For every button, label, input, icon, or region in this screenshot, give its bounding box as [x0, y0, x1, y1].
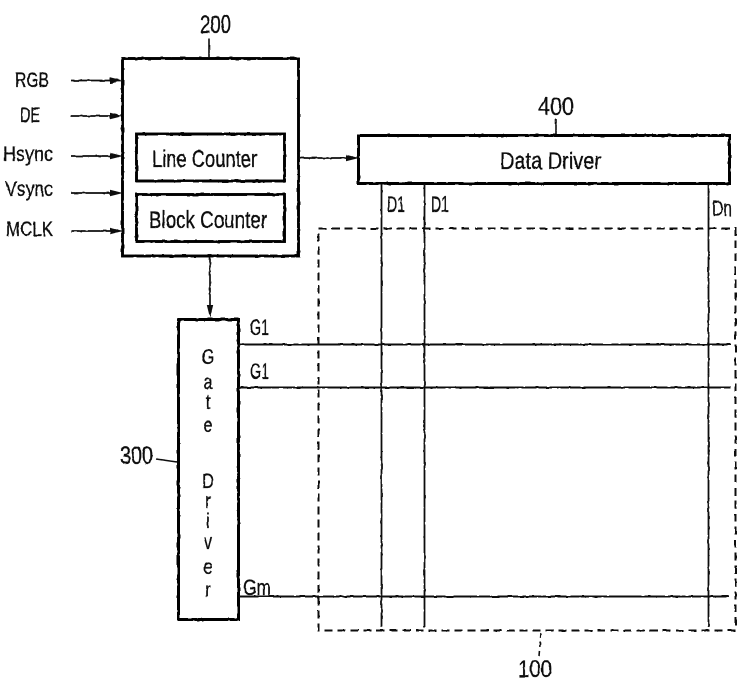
svg-text:D1: D1 [431, 192, 449, 217]
svg-text:G1: G1 [250, 315, 269, 340]
svg-text:DE: DE [20, 104, 40, 127]
svg-text:MCLK: MCLK [6, 218, 53, 241]
svg-text:Hsync: Hsync [3, 143, 53, 166]
svg-text:e: e [203, 555, 212, 578]
svg-text:100: 100 [518, 656, 552, 683]
svg-text:G: G [202, 345, 215, 368]
svg-text:RGB: RGB [15, 69, 49, 92]
svg-text:Block Counter: Block Counter [149, 207, 267, 234]
svg-text:Data Driver: Data Driver [500, 148, 601, 175]
svg-text:Vsync: Vsync [5, 178, 53, 201]
svg-text:Line Counter: Line Counter [152, 146, 257, 173]
svg-text:r: r [205, 578, 210, 601]
svg-text:v: v [204, 530, 213, 553]
svg-text:200: 200 [200, 11, 231, 39]
svg-text:300: 300 [120, 442, 153, 470]
svg-text:t: t [206, 390, 211, 413]
svg-text:400: 400 [538, 93, 574, 121]
svg-text:Dn: Dn [712, 196, 732, 221]
svg-text:e: e [203, 413, 212, 436]
svg-text:D1: D1 [387, 192, 405, 217]
svg-text:i: i [206, 509, 210, 532]
svg-text:G1: G1 [250, 359, 269, 384]
